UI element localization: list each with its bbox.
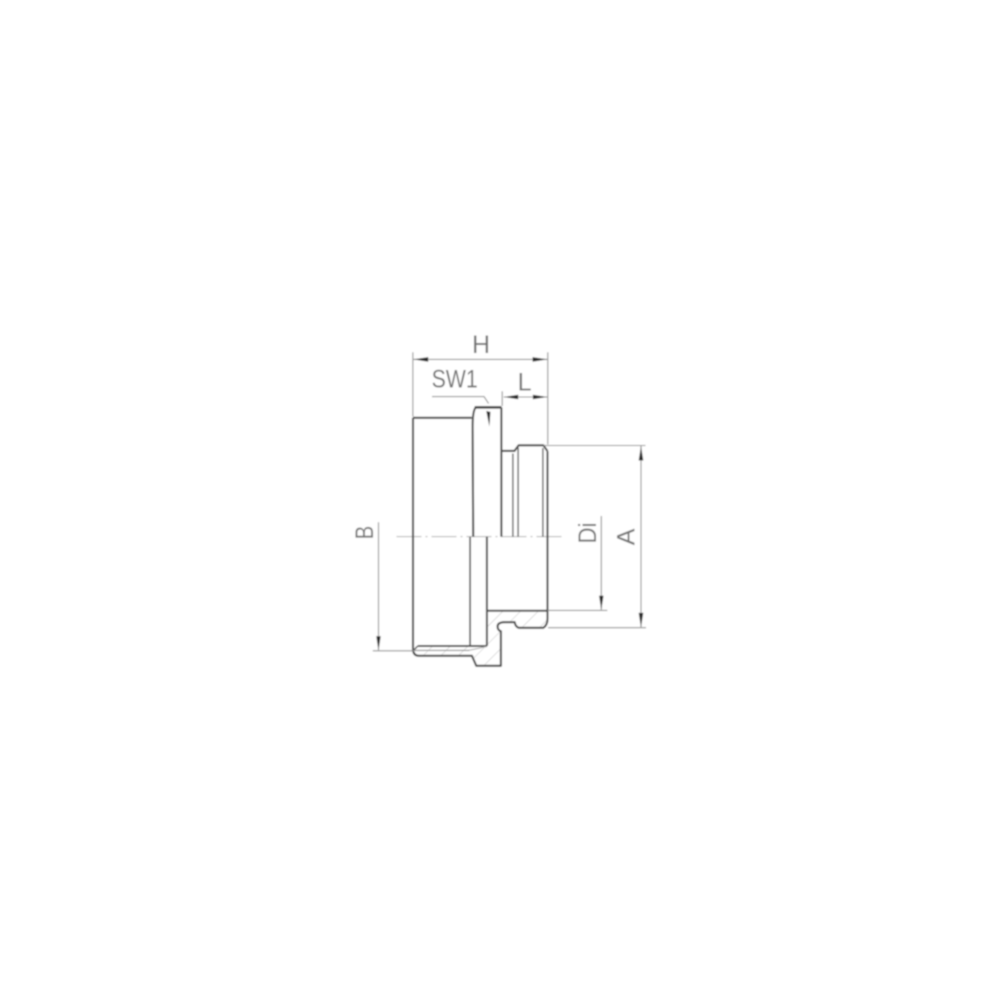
svg-text:L: L [518,369,532,397]
svg-text:Di: Di [574,523,602,544]
svg-text:A: A [613,528,641,545]
svg-text:B: B [351,526,379,540]
svg-text:H: H [472,331,490,359]
svg-text:SW1: SW1 [432,366,478,394]
